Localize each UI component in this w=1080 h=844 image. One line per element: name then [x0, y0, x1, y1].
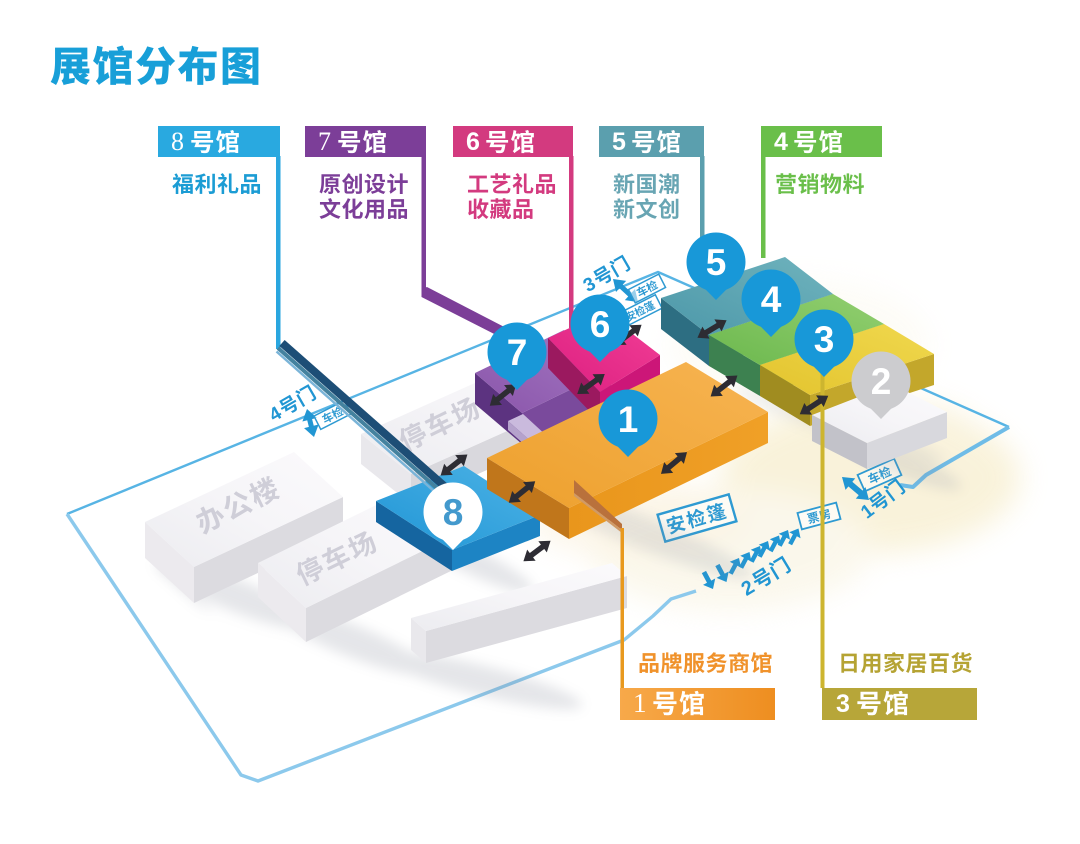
svg-text:7: 7 — [507, 332, 528, 373]
svg-text:5: 5 — [706, 242, 727, 283]
svg-text:4: 4 — [774, 128, 788, 156]
svg-text:4: 4 — [761, 279, 782, 320]
svg-text:2: 2 — [871, 361, 892, 402]
svg-text:4: 4 — [266, 403, 286, 427]
svg-text:3: 3 — [836, 690, 850, 718]
svg-text:1: 1 — [618, 399, 639, 440]
svg-text:6: 6 — [590, 304, 611, 345]
svg-text:6: 6 — [466, 128, 480, 156]
svg-text:1: 1 — [633, 688, 647, 718]
svg-text:8: 8 — [171, 127, 184, 156]
svg-text:3: 3 — [580, 273, 600, 296]
svg-text:3: 3 — [814, 319, 835, 360]
svg-text:8: 8 — [443, 492, 464, 533]
svg-text:5: 5 — [612, 128, 626, 156]
svg-text:7: 7 — [318, 127, 331, 156]
